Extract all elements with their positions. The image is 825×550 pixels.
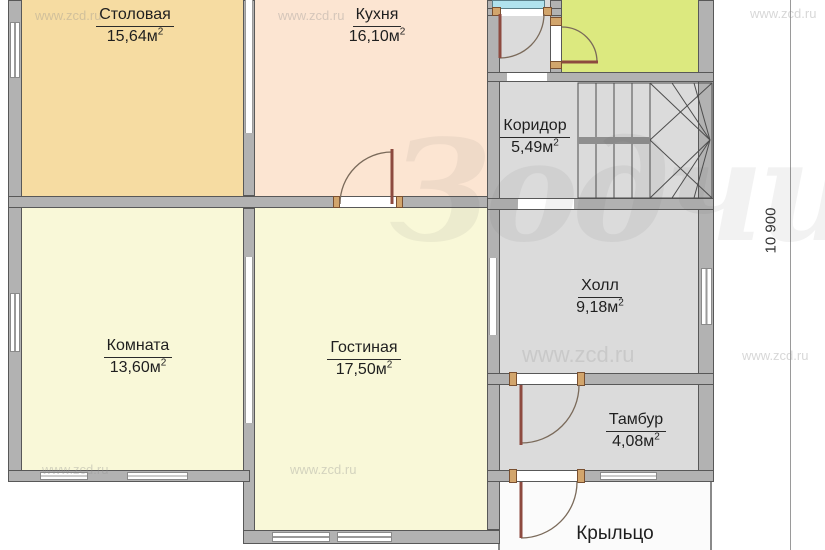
room-name: Крыльцо [576, 523, 654, 544]
room-name: Тамбур [606, 410, 666, 432]
room-area: 15,64м2 [107, 28, 164, 45]
archway-komnata-gostinaya [245, 257, 253, 423]
room-name: Столовая [96, 5, 174, 27]
window-stolovaya-left [10, 22, 20, 78]
door-jamb [577, 372, 585, 386]
door-jamb [577, 469, 585, 483]
window-holl-right [701, 268, 712, 325]
window-gostinaya-bottom-1 [272, 532, 330, 542]
label-gostinaya: Гостиная 17,50м2 [289, 338, 439, 380]
door-jamb [333, 196, 340, 208]
door-jamb [543, 7, 552, 16]
room-area: 5,49м2 [511, 139, 559, 156]
door-jamb [492, 7, 501, 16]
door-jamb [509, 469, 517, 483]
dimension-line [790, 0, 791, 550]
window-komnata-left [10, 293, 20, 352]
window-tambur-bottom [600, 472, 657, 480]
logo-watermark: Зодчий [390, 110, 825, 274]
room-area: 9,18м2 [576, 299, 624, 316]
site-watermark: www.zcd.ru [750, 6, 816, 21]
floor-plan: 10 900 Зодчий www.zcd.ru www.zcd.ru www.… [0, 0, 825, 550]
room-name: Коридор [500, 116, 569, 138]
label-stolovaya: Столовая 15,64м2 [60, 5, 210, 47]
room-name: Кухня [353, 5, 402, 27]
room-area: 16,10м2 [349, 28, 406, 45]
archway-stolovaya-kuhnya [245, 0, 253, 133]
room-area: 4,08м2 [612, 433, 660, 450]
site-watermark-hall: www.zcd.ru [522, 342, 634, 368]
label-komnata: Комната 13,60м2 [63, 336, 213, 378]
door-opening-smallroom [500, 9, 544, 16]
opening-smallroom-koridor [507, 73, 547, 81]
label-koridor: Коридор 5,49м2 [464, 116, 606, 158]
door-opening-porch [517, 471, 577, 481]
room-name: Холл [578, 276, 622, 298]
room-area: 17,50м2 [336, 361, 393, 378]
label-holl: Холл 9,18м2 [530, 276, 670, 318]
door-jamb [550, 61, 562, 69]
room-name: Комната [104, 336, 173, 358]
dimension-text: 10 900 [762, 208, 779, 254]
door-jamb [509, 372, 517, 386]
room-name: Гостиная [327, 338, 400, 360]
label-tambur: Тамбур 4,08м2 [566, 410, 706, 452]
window-gostinaya-bottom-2 [337, 532, 392, 542]
door-opening-tambur [517, 374, 577, 384]
site-watermark: www.zcd.ru [742, 348, 808, 363]
door-opening-greenroom [551, 25, 561, 62]
label-kryltso: Крыльцо [545, 522, 685, 546]
door-opening-kitchen [339, 197, 397, 207]
label-kuhnya: Кухня 16,10м2 [302, 5, 452, 47]
room-area: 13,60м2 [110, 359, 167, 376]
site-watermark: www.zcd.ru [290, 462, 356, 477]
site-watermark: www.zcd.ru [42, 462, 108, 477]
room-fill-green [562, 0, 700, 73]
window-komnata-bottom-2 [127, 472, 188, 480]
door-jamb [550, 17, 562, 26]
